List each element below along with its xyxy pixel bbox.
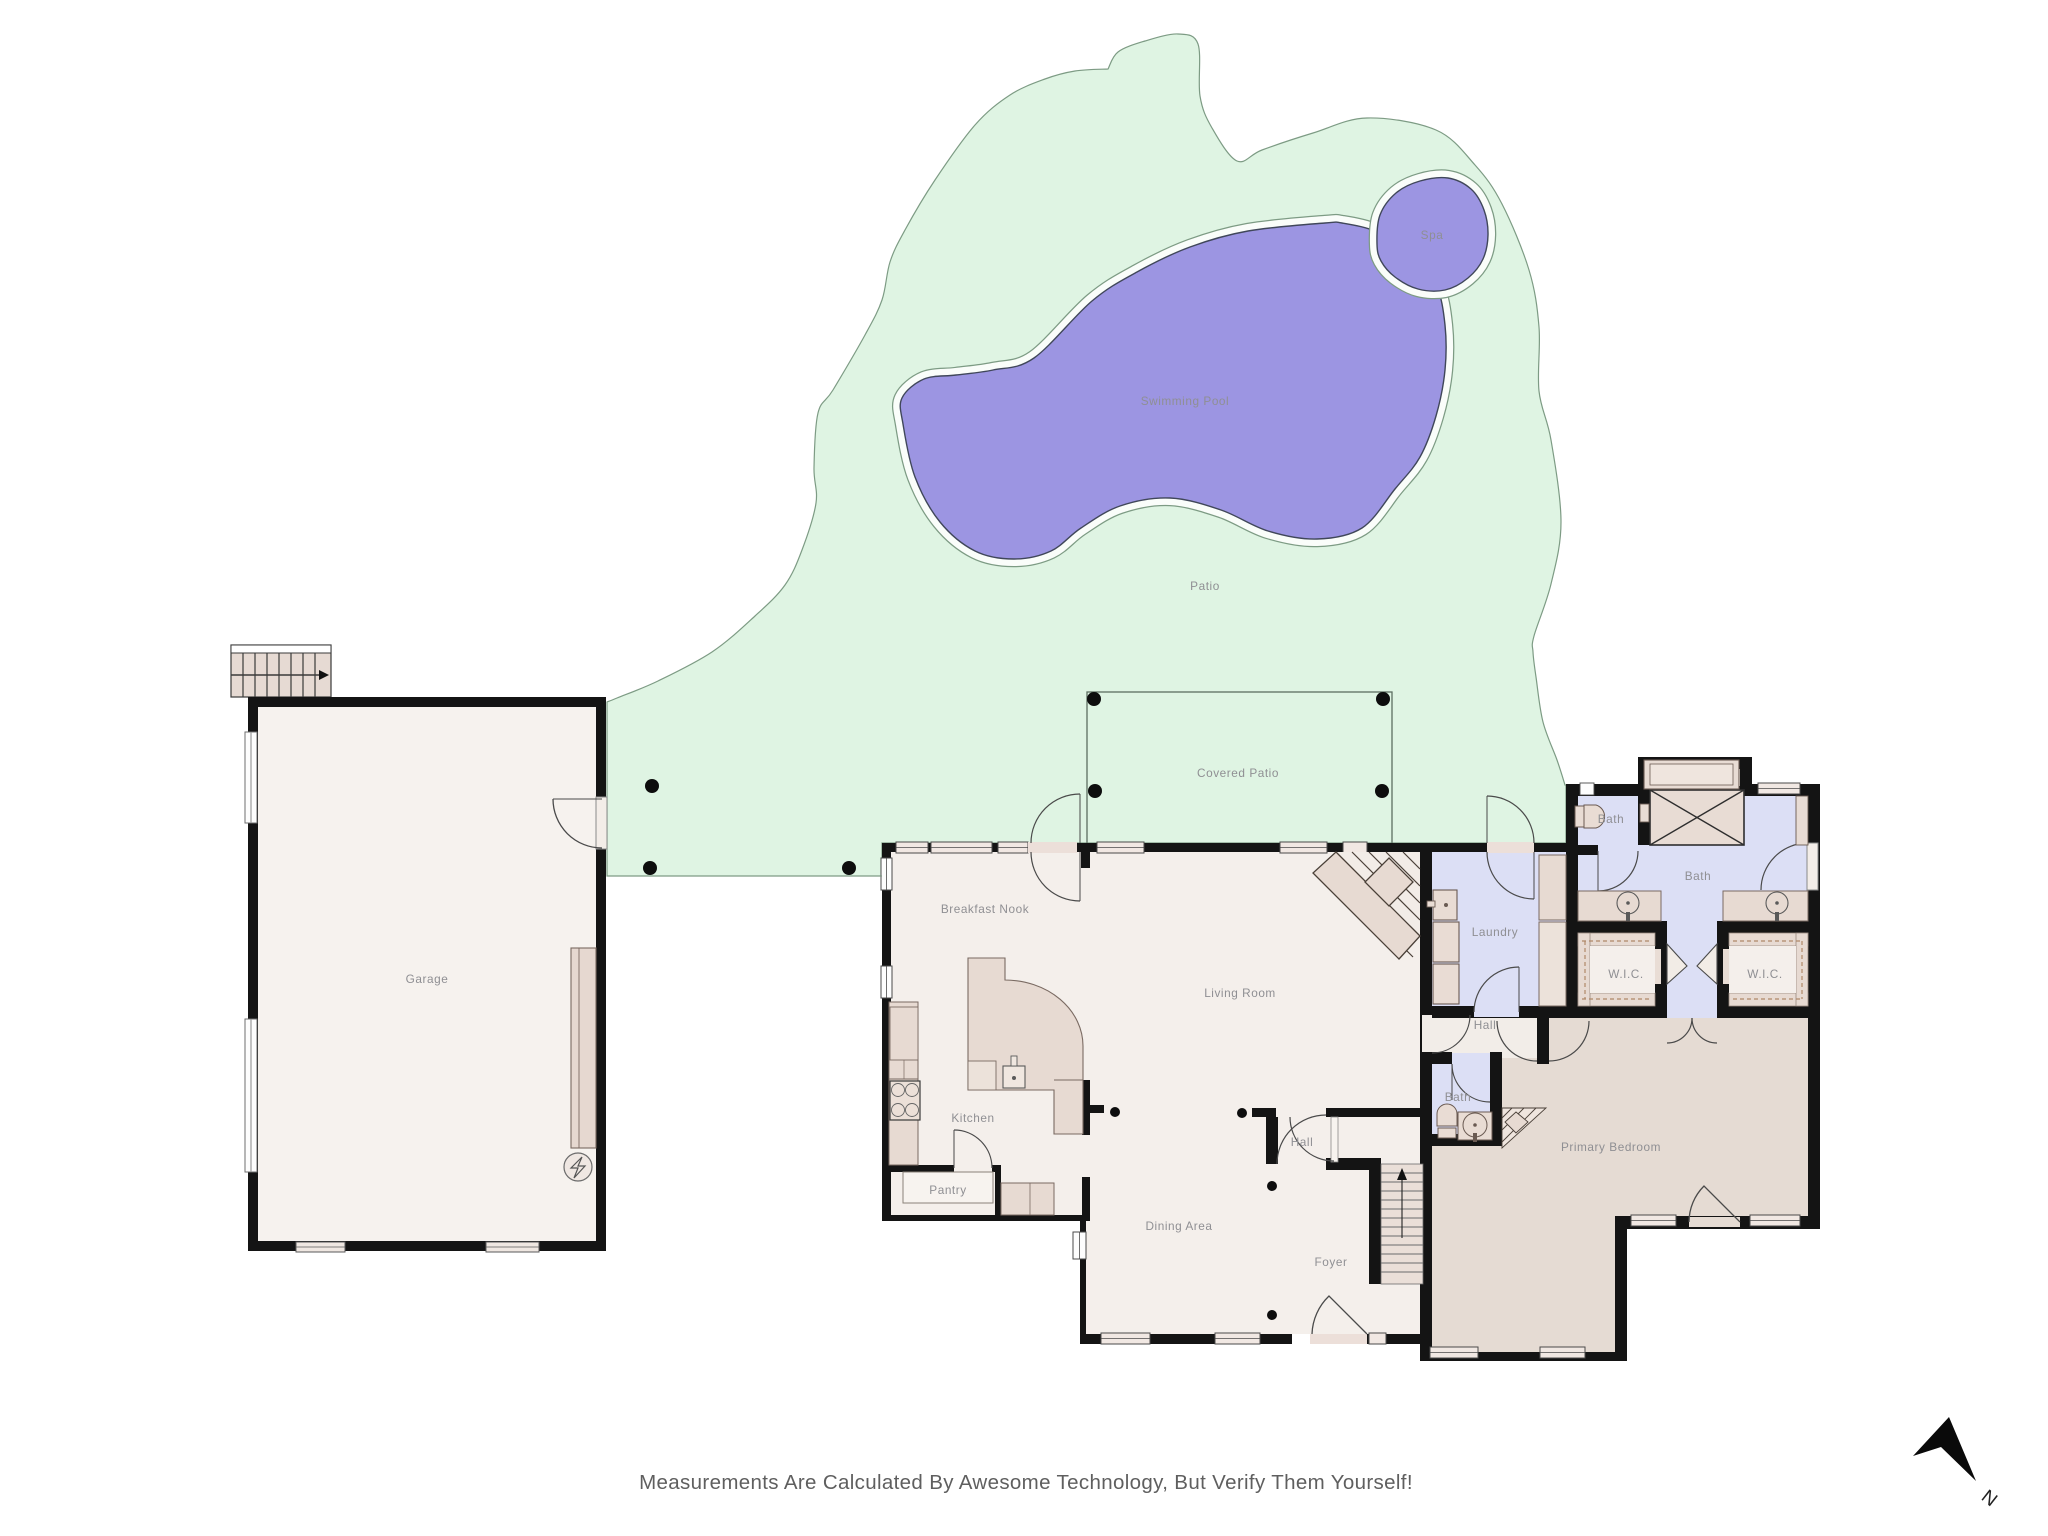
svg-text:Dining Area: Dining Area	[1145, 1219, 1212, 1233]
svg-text:Garage: Garage	[406, 972, 449, 986]
svg-text:Bath: Bath	[1445, 1090, 1471, 1104]
svg-text:Foyer: Foyer	[1315, 1255, 1348, 1269]
svg-text:W.I.C.: W.I.C.	[1608, 967, 1643, 981]
svg-text:Hall: Hall	[1474, 1018, 1497, 1032]
svg-text:Living Room: Living Room	[1204, 986, 1276, 1000]
svg-text:Kitchen: Kitchen	[951, 1111, 994, 1125]
svg-text:Covered Patio: Covered Patio	[1197, 766, 1279, 780]
svg-text:Patio: Patio	[1190, 579, 1220, 593]
svg-text:Bath: Bath	[1598, 812, 1624, 826]
svg-text:Spa: Spa	[1421, 228, 1444, 242]
svg-text:Pantry: Pantry	[929, 1183, 966, 1197]
svg-text:Hall: Hall	[1291, 1135, 1314, 1149]
svg-text:Measurements Are Calculated By: Measurements Are Calculated By Awesome T…	[639, 1471, 1413, 1494]
svg-text:W.I.C.: W.I.C.	[1747, 967, 1782, 981]
svg-text:Laundry: Laundry	[1472, 925, 1518, 939]
svg-text:Bath: Bath	[1685, 869, 1711, 883]
svg-text:Breakfast Nook: Breakfast Nook	[941, 902, 1029, 916]
svg-text:Primary Bedroom: Primary Bedroom	[1561, 1140, 1661, 1154]
svg-text:Swimming Pool: Swimming Pool	[1141, 394, 1229, 408]
